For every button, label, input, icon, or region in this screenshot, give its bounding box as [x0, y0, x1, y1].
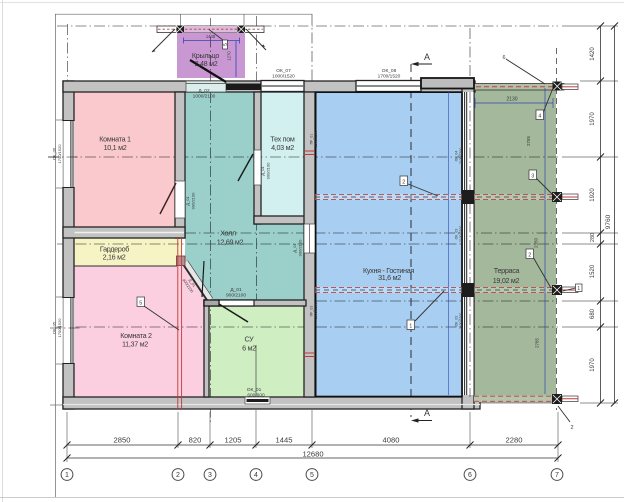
svg-text:ПР_01: ПР_01: [310, 134, 314, 145]
svg-text:Д_01: Д_01: [260, 166, 265, 176]
svg-text:1000/2100: 1000/2100: [193, 94, 216, 100]
svg-text:12680: 12680: [302, 450, 323, 459]
svg-text:2130: 2130: [506, 97, 517, 103]
svg-text:2280: 2280: [506, 436, 523, 445]
svg-text:820: 820: [189, 436, 202, 445]
svg-text:ОК_04: ОК_04: [455, 151, 459, 162]
svg-text:ОК_01: ОК_01: [247, 387, 262, 393]
svg-text:4: 4: [538, 114, 541, 120]
svg-text:ПР_03: ПР_03: [310, 306, 314, 317]
svg-text:1000/1520: 1000/1520: [272, 74, 295, 80]
svg-text:2,16 м2: 2,16 м2: [103, 253, 126, 262]
svg-text:Терраса: Терраса: [494, 266, 520, 275]
svg-text:12,69 м2: 12,69 м2: [217, 238, 244, 247]
svg-text:7: 7: [555, 472, 559, 479]
svg-text:3: 3: [531, 174, 534, 180]
svg-text:1500/2100: 1500/2100: [314, 303, 318, 320]
svg-text:2,48 м2: 2,48 м2: [195, 59, 218, 68]
svg-text:11,37 м2: 11,37 м2: [122, 340, 148, 349]
svg-text:1: 1: [65, 472, 69, 479]
svg-text:900/2100: 900/2100: [298, 239, 303, 256]
svg-text:900/2100: 900/2100: [266, 162, 271, 179]
svg-text:Д_01: Д_01: [230, 287, 242, 293]
svg-text:1970: 1970: [590, 358, 596, 372]
svg-text:4: 4: [254, 472, 258, 479]
svg-text:1: 1: [409, 324, 412, 330]
svg-text:ОК_08: ОК_08: [382, 68, 397, 74]
svg-text:1: 1: [577, 286, 580, 292]
svg-text:ОК_03: ОК_03: [455, 229, 459, 240]
svg-text:ОК_06: ОК_06: [52, 147, 57, 160]
svg-text:2785: 2785: [535, 337, 540, 348]
svg-text:900/2100: 900/2100: [191, 192, 196, 209]
svg-text:1205: 1205: [225, 436, 242, 445]
svg-text:2: 2: [402, 180, 405, 186]
svg-text:1435: 1435: [206, 34, 216, 39]
svg-text:2100/2200: 2100/2200: [459, 313, 463, 330]
svg-text:6: 6: [502, 55, 505, 61]
svg-text:5: 5: [310, 472, 314, 479]
svg-text:А: А: [424, 408, 430, 418]
svg-text:2850: 2850: [114, 436, 131, 445]
svg-text:Холл: Холл: [220, 229, 236, 238]
svg-text:5: 5: [223, 43, 229, 46]
svg-text:31,6 м2: 31,6 м2: [378, 273, 401, 282]
svg-text:6: 6: [468, 472, 472, 479]
svg-text:3: 3: [208, 472, 212, 479]
svg-text:4080: 4080: [383, 436, 400, 445]
svg-text:1270: 1270: [227, 51, 232, 61]
svg-text:2: 2: [176, 472, 180, 479]
svg-text:СУ: СУ: [245, 335, 255, 344]
svg-text:1700/1520: 1700/1520: [378, 74, 401, 80]
svg-text:1445: 1445: [276, 436, 293, 445]
svg-text:ОК_02: ОК_02: [455, 316, 459, 327]
svg-text:1700/1520: 1700/1520: [57, 318, 62, 338]
svg-text:1500/2100: 1500/2100: [314, 131, 318, 148]
svg-text:680: 680: [590, 308, 596, 319]
svg-text:600/600: 600/600: [247, 393, 265, 399]
svg-text:2350: 2350: [534, 237, 539, 248]
svg-text:2100/2200: 2100/2200: [459, 148, 463, 165]
svg-text:5: 5: [139, 301, 142, 307]
svg-text:1700/1520: 1700/1520: [57, 144, 62, 164]
svg-text:900/2100: 900/2100: [226, 293, 246, 299]
svg-text:280: 280: [590, 233, 596, 242]
svg-text:А: А: [424, 52, 430, 62]
svg-text:10,1 м2: 10,1 м2: [104, 143, 127, 152]
svg-text:1970: 1970: [590, 112, 596, 126]
svg-text:1920: 1920: [590, 188, 596, 202]
svg-text:1520: 1520: [590, 264, 596, 278]
svg-text:ОК_07: ОК_07: [276, 68, 291, 74]
svg-text:6 м2: 6 м2: [242, 344, 256, 353]
svg-text:Д_01: Д_01: [292, 243, 297, 253]
svg-text:2: 2: [528, 253, 531, 259]
svg-text:ОК_05: ОК_05: [52, 321, 57, 334]
svg-text:2100/2200: 2100/2200: [459, 226, 463, 243]
svg-text:19,02 м2: 19,02 м2: [493, 276, 520, 285]
svg-text:Д_02: Д_02: [198, 88, 210, 94]
svg-text:2785: 2785: [526, 135, 531, 146]
svg-text:2: 2: [570, 425, 573, 431]
svg-text:4,03 м2: 4,03 м2: [271, 143, 294, 152]
svg-text:9760: 9760: [605, 214, 612, 229]
svg-text:1420: 1420: [590, 47, 596, 61]
svg-text:Д_01: Д_01: [185, 196, 190, 206]
